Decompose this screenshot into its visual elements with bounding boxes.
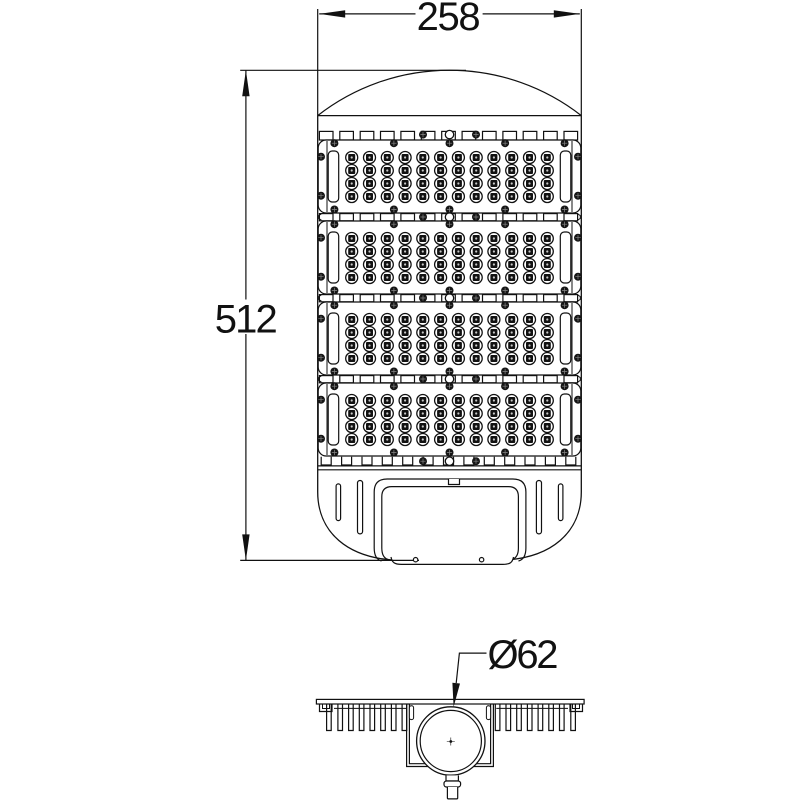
svg-text:512: 512 xyxy=(215,298,278,342)
svg-text:258: 258 xyxy=(417,0,481,39)
svg-text:Ø62: Ø62 xyxy=(488,633,559,677)
